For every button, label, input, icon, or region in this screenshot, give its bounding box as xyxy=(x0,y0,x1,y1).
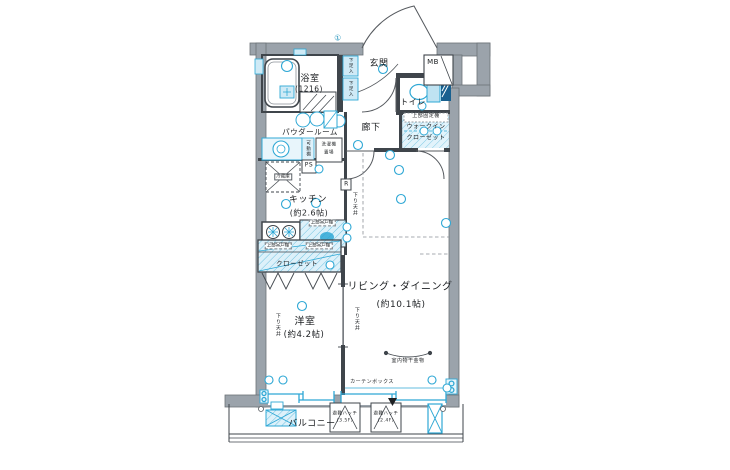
lowered-ceiling-label-2: 下り天井 xyxy=(351,192,357,216)
lowered-ceiling-label-1: 下り天井 xyxy=(274,313,280,337)
refrigerator-mark: R xyxy=(344,181,349,188)
fixtures xyxy=(255,49,453,272)
wic-label-line2: クローゼット xyxy=(406,136,445,143)
bathroom-label: 浴室 xyxy=(300,74,319,84)
kitchen-label: キッチン xyxy=(289,195,327,205)
circled-number-1: ① xyxy=(334,33,342,42)
wic-upper-shelf-label: 上部固定棚 xyxy=(412,114,440,120)
living-dining-label: リビング・ダイニング xyxy=(348,281,453,293)
hallway-label: 廊下 xyxy=(361,123,380,133)
shoe-cabinet-label-1: 下足入 xyxy=(348,58,353,75)
curtain-box-label: カーテンボックス xyxy=(350,380,394,386)
pipe-space-label: PS xyxy=(305,163,313,170)
escape-hatch-2-floor: (2.4F) xyxy=(378,418,394,423)
washer-label-line2: 置場 xyxy=(324,150,334,155)
escape-hatch-1-label: 避難ハッチ xyxy=(333,411,358,416)
wic-label-line1: ウォークイン xyxy=(406,125,445,132)
refrigerator-label: 冷蔵庫 xyxy=(274,173,292,180)
powder-room-label: パウダールーム xyxy=(282,129,338,138)
living-dining-size: (約10.1帖) xyxy=(376,300,425,310)
closet-label: クローゼット xyxy=(276,260,318,267)
movable-shelf-label: 可動棚 xyxy=(305,141,310,158)
indoor-drying-symbol xyxy=(384,351,431,357)
balcony-label: バルコニー xyxy=(288,419,335,429)
lowered-ceiling-label-3: 下り天井 xyxy=(353,307,359,331)
kitchen-size: (約2.6帖) xyxy=(290,208,328,217)
escape-hatch-2-label: 避難ハッチ xyxy=(374,411,399,416)
bathroom-size: (1216) xyxy=(295,86,323,95)
upper-cabinet-label-1: 上部吊戸棚 xyxy=(265,242,292,249)
toilet-label: トイレ xyxy=(400,97,426,106)
upper-cabinet-label-2: 上部吊戸棚 xyxy=(306,242,333,249)
shoe-cabinet-label-2: 下足入 xyxy=(348,81,353,98)
western-room-size: (約4.2帖) xyxy=(284,331,325,341)
escape-hatch-1-floor: (3.5F) xyxy=(337,418,353,423)
lowered-ceiling-lines xyxy=(363,153,449,254)
floor-plan-drawing xyxy=(0,0,730,470)
floor-plan: 浴室 (1216) パウダールーム 玄関 MB トイレ 廊下 上部固定棚 ウォー… xyxy=(0,0,730,470)
western-room-label: 洋室 xyxy=(295,316,316,328)
meter-box-label: MB xyxy=(427,58,439,66)
washer-label-line1: 洗濯機 xyxy=(322,142,337,147)
indoor-drying-label: 室内物干金物 xyxy=(391,359,424,365)
entrance-label: 玄関 xyxy=(369,59,388,69)
upper-cabinet-label-counter: 上部吊戸棚 xyxy=(309,219,336,226)
